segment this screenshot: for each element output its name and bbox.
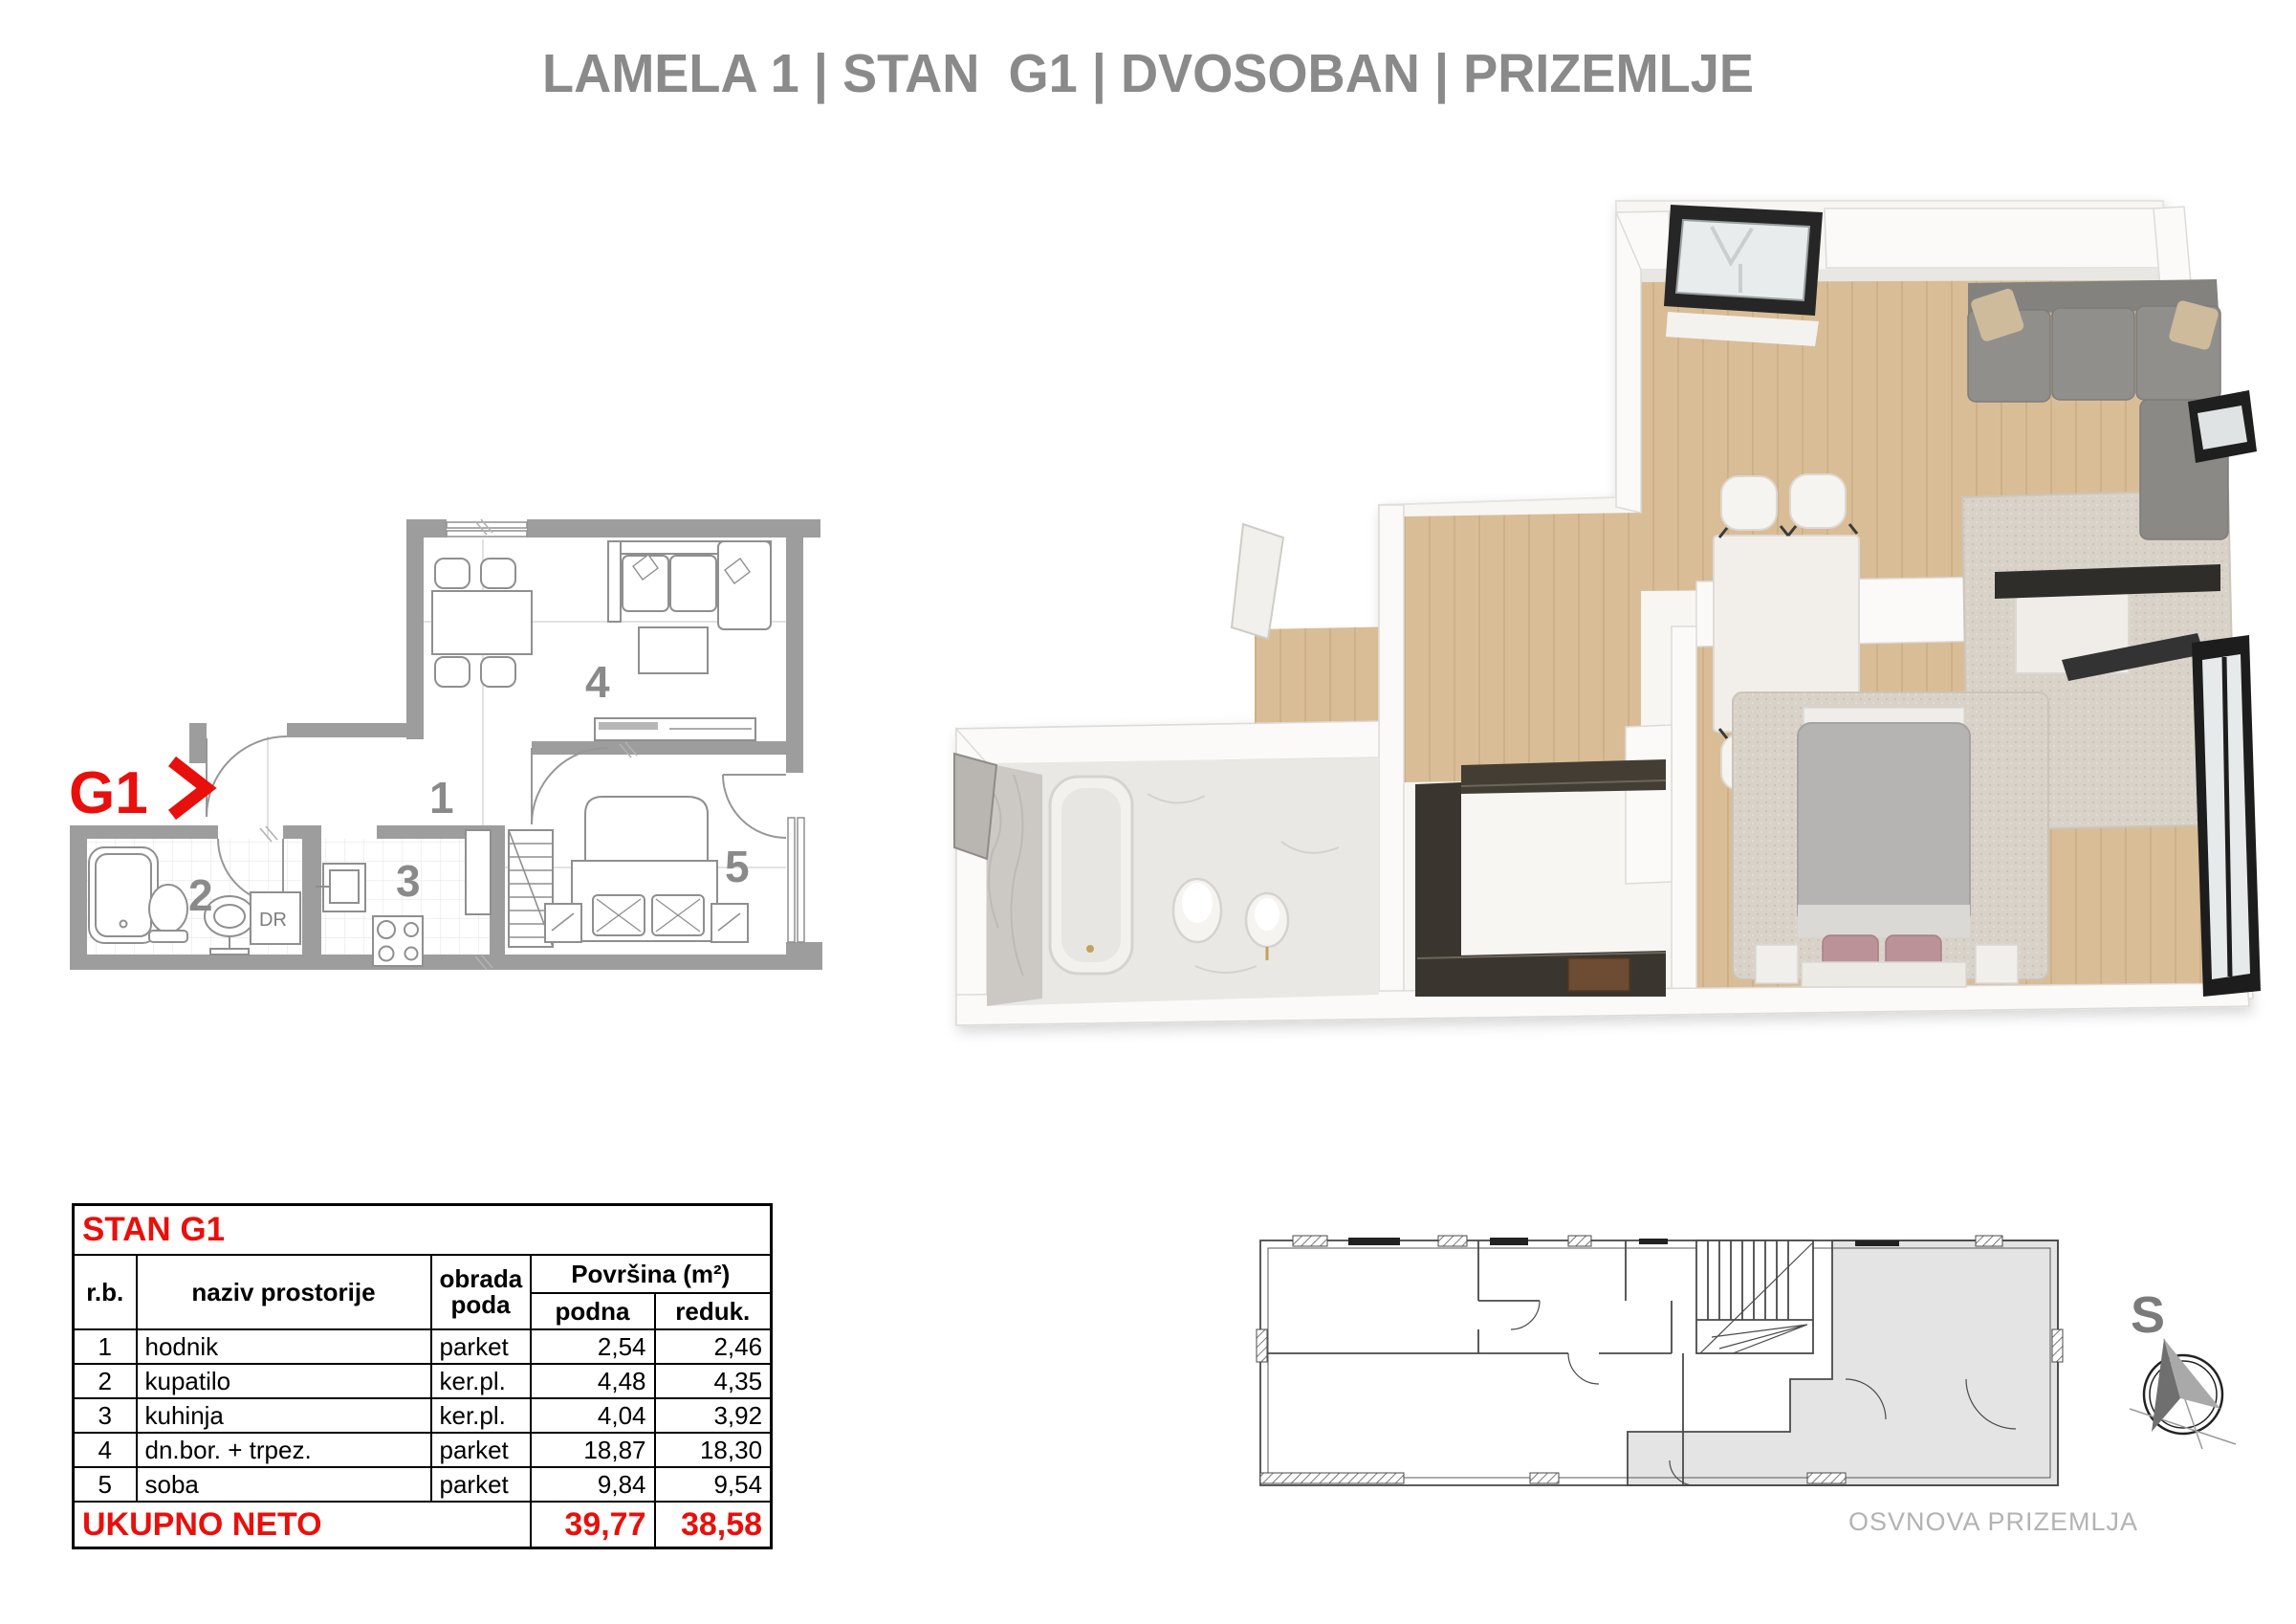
col-header-podna: podna [531,1293,655,1329]
compass-north-label: S [2131,1286,2165,1344]
coffee-table [639,627,708,673]
toilet [149,885,187,942]
cell-reduk: 18,30 [655,1433,772,1467]
highlighted-unit-region [1628,1240,2058,1485]
tv-sideboard [595,718,755,740]
col-header-floor: obrada poda [431,1255,531,1329]
area-table: STAN G1 r.b. naziv prostorije obrada pod… [72,1203,773,1549]
cell-floor: parket [431,1467,531,1502]
cell-name: kupatilo [137,1364,431,1398]
bedroom-furniture [1733,692,2048,987]
total-reduk: 38,58 [655,1502,772,1548]
table-title: STAN G1 [74,1205,772,1256]
total-podna: 39,77 [531,1502,655,1548]
sofa [608,541,771,629]
dining-set [432,559,532,687]
cell-rb: 5 [74,1467,137,1502]
compass-rose-icon [2130,1339,2236,1449]
window-top [447,517,527,539]
cell-floor: parket [431,1329,531,1364]
site-plan-caption: OSVNOVA PRIZEMLJA [1848,1507,2138,1537]
room-number-5: 5 [725,842,750,891]
total-label: UKUPNO NETO [74,1502,531,1548]
staircase [1696,1240,1813,1353]
stove [373,916,423,966]
table-row: 2 kupatilo ker.pl. 4,48 4,35 [74,1364,772,1398]
unit-label: G1 [69,760,148,826]
entry-door-leaf [1232,524,1283,639]
cell-reduk: 3,92 [655,1398,772,1433]
page-title: LAMELA 1 | STAN G1 | DVOSOBAN | PRIZEMLJ… [57,42,2239,105]
render-3d [899,124,2266,1071]
cell-rb: 3 [74,1398,137,1433]
cell-floor: parket [431,1433,531,1467]
cell-podna: 9,84 [531,1467,655,1502]
cell-rb: 4 [74,1433,137,1467]
cell-podna: 18,87 [531,1433,655,1467]
cell-reduk: 4,35 [655,1364,772,1398]
room-number-2: 2 [188,870,213,920]
table-row: 4 dn.bor. + trpez. parket 18,87 18,30 [74,1433,772,1467]
window-right [788,818,804,942]
cell-name: soba [137,1467,431,1502]
cell-name: dn.bor. + trpez. [137,1433,431,1467]
table-row: UKUPNO NETO 39,77 38,58 [74,1502,772,1548]
cell-podna: 4,48 [531,1364,655,1398]
kitchen-sink-unit [316,864,365,911]
cell-rb: 2 [74,1364,137,1398]
col-header-area: Površina (m²) [531,1255,772,1293]
cell-podna: 4,04 [531,1398,655,1433]
cell-name: kuhinja [137,1398,431,1433]
room-number-4: 4 [585,657,610,707]
cell-rb: 1 [74,1329,137,1364]
cell-reduk: 2,46 [655,1329,772,1364]
cell-floor: ker.pl. [431,1364,531,1398]
cell-floor: ker.pl. [431,1398,531,1433]
site-plan [1243,1224,2075,1502]
compass: S [2109,1262,2262,1463]
room-number-1: 1 [429,773,454,823]
col-header-reduk: reduk. [655,1293,772,1329]
table-row: 5 soba parket 9,84 9,54 [74,1467,772,1502]
col-header-floor-line1: obrada [440,1266,522,1292]
col-header-floor-line2: poda [440,1292,522,1318]
cell-reduk: 9,54 [655,1467,772,1502]
bed [545,797,748,942]
closet-label: DR [259,910,287,931]
kitchen-cabinet [466,830,491,914]
closet-dr: DR [251,892,300,944]
unit-arrow-icon [172,761,207,815]
table-row: 3 kuhinja ker.pl. 4,04 3,92 [74,1398,772,1433]
cell-podna: 2,54 [531,1329,655,1364]
col-header-rb: r.b. [74,1255,137,1329]
col-header-name: naziv prostorije [137,1255,431,1329]
table-row: STAN G1 [74,1205,772,1256]
bathtub [89,847,158,943]
table-row: 1 hodnik parket 2,54 2,46 [74,1329,772,1364]
cell-name: hodnik [137,1329,431,1364]
bathroom-3d [954,754,1379,1006]
table-row: r.b. naziv prostorije obrada poda Površi… [74,1255,772,1293]
brochure-page: LAMELA 1 | STAN G1 | DVOSOBAN | PRIZEMLJ… [0,0,2296,1624]
floorplan-2d: DR [57,507,842,1028]
room-number-3: 3 [396,856,421,906]
solid-lintels [1348,1238,1899,1246]
